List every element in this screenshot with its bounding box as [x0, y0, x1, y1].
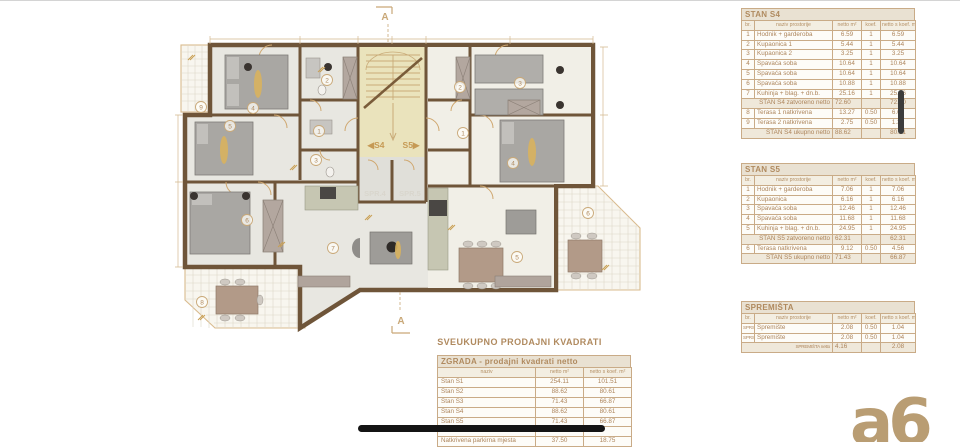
table-cell: STAN S4 zatvoreno netto	[742, 99, 833, 109]
table-cell: Stan S3	[438, 397, 536, 407]
table-cell: Terasa 1 natkrivena	[755, 109, 833, 119]
table-cell: 9	[742, 118, 755, 128]
table-row: STAN S4 zatvoreno netto72.6072.60	[742, 99, 916, 109]
table-cell: 1	[862, 89, 881, 99]
table-cell: 4	[742, 60, 755, 70]
stan-s4-table: STAN S4 br. naziv prostorije netto m² ko…	[741, 8, 915, 139]
table-cell: Kuhinja + blag. + dn.b.	[755, 89, 833, 99]
page: { "colors": { "accent_tan": "#c9a878", "…	[0, 0, 960, 442]
table-cell: 24.95	[833, 224, 862, 234]
table-row: 1Hodnik + garderoba7.0617.06	[742, 185, 916, 195]
table-cell: 4.16	[833, 343, 862, 353]
spremista-title: SPREMIŠTA	[741, 301, 915, 313]
col-header: netto s koef. m²	[881, 21, 916, 31]
table-cell: 72.60	[833, 99, 862, 109]
table-cell: Kupaonica	[755, 195, 833, 205]
room-number: 2	[325, 78, 329, 85]
table-cell: 6.59	[833, 30, 862, 40]
table-cell: 11.68	[881, 215, 916, 225]
table-cell: 101.51	[584, 377, 632, 387]
table-cell: Terasa 2 natkrivena	[755, 118, 833, 128]
table-cell: Hodnik + garderoba	[755, 185, 833, 195]
table-cell: 5	[742, 224, 755, 234]
col-header: koef.	[862, 314, 881, 324]
section-marker-top: A	[376, 7, 392, 44]
table-cell: 88.62	[536, 407, 584, 417]
table-cell: 2.08	[833, 333, 862, 343]
table-cell: 80.61	[584, 407, 632, 417]
section-label-top: A	[381, 12, 388, 23]
storage-label-spr5: SPR.5	[399, 189, 421, 198]
table-cell: 10.64	[881, 69, 916, 79]
table-cell: 1	[862, 40, 881, 50]
room-number: 8	[200, 300, 204, 307]
table-cell: 3	[742, 50, 755, 60]
table-cell: 0.50	[862, 109, 881, 119]
table-cell: 6	[742, 79, 755, 89]
marker-horizontal-line	[358, 425, 605, 432]
table-cell: Spavaća soba	[755, 60, 833, 70]
table-cell: 1	[862, 30, 881, 40]
table-cell: Stan S1	[438, 377, 536, 387]
table-row: SPRS4Spremište2.080.501.04	[742, 323, 916, 333]
room-number: 9	[199, 105, 203, 112]
table-cell: Kupaonica 2	[755, 50, 833, 60]
table-row: STAN S4 ukupno netto88.6280.61	[742, 128, 916, 138]
col-header: netto m²	[833, 21, 862, 31]
col-header: netto s koef. m²	[881, 176, 916, 186]
table-cell: Kupaonica 1	[755, 40, 833, 50]
table-cell: STAN S5 zatvoreno netto	[742, 234, 833, 244]
table-cell: 4.56	[881, 244, 916, 254]
stan-s5-title: STAN S5	[741, 163, 915, 175]
table-cell: Terasa natkrivena	[755, 244, 833, 254]
table-cell: 7.06	[881, 185, 916, 195]
table-cell: 1	[742, 30, 755, 40]
room-number: 7	[331, 246, 335, 253]
table-cell: 2	[742, 195, 755, 205]
table-cell: 5	[742, 69, 755, 79]
table-cell: 2.75	[833, 118, 862, 128]
table-row: 2Kupaonica 15.4415.44	[742, 40, 916, 50]
section-label-bottom: A	[397, 316, 404, 327]
spremista-table: SPREMIŠTA br. naziv prostorije netto m² …	[741, 301, 915, 353]
table-cell: 1	[862, 205, 881, 215]
table-cell: 5.44	[881, 40, 916, 50]
table-cell: 1	[862, 60, 881, 70]
table-cell: SPREMIŠTA netto	[742, 343, 833, 353]
section-marker-bottom: A	[392, 292, 410, 333]
table-cell: 3.25	[881, 50, 916, 60]
table-cell: Hodnik + garderoba	[755, 30, 833, 40]
col-header: koef.	[862, 176, 881, 186]
table-row: 1Hodnik + garderoba6.5916.59	[742, 30, 916, 40]
room-number: 5	[515, 255, 519, 262]
table-cell: 1	[862, 69, 881, 79]
table-cell: 10.64	[833, 60, 862, 70]
table-cell: 7	[742, 89, 755, 99]
table-cell: 1	[862, 195, 881, 205]
table-cell: Spavaća soba	[755, 69, 833, 79]
table-cell: 11.68	[833, 215, 862, 225]
table-cell: 1	[742, 185, 755, 195]
room-number: 4	[251, 106, 255, 113]
table-row: 3Spavaća soba12.46112.46	[742, 205, 916, 215]
table-cell	[862, 128, 881, 138]
table-row: 7Kuhinja + blag. + dn.b.25.16125.16	[742, 89, 916, 99]
table-row: 5Spavaća soba10.64110.64	[742, 69, 916, 79]
table-cell: Spavaća soba	[755, 79, 833, 89]
table-cell	[862, 343, 881, 353]
stair-label-s4: ◀S4	[367, 140, 385, 150]
table-cell: 0.50	[862, 323, 881, 333]
table-row: STAN S5 ukupno netto71.4366.87	[742, 254, 916, 264]
table-row: SPRS5Spremište2.080.501.04	[742, 333, 916, 343]
table-cell: 10.64	[833, 69, 862, 79]
table-cell: 1	[862, 79, 881, 89]
room-number: 3	[518, 81, 522, 88]
table-cell: 62.31	[881, 234, 916, 244]
summary-title: SVEUKUPNO PRODAJNI KVADRATI	[402, 337, 637, 347]
table-row: 9Terasa 2 natkrivena2.750.501.38	[742, 118, 916, 128]
table-cell: 12.46	[881, 205, 916, 215]
table-cell: 2.08	[881, 343, 916, 353]
table-cell: 0.50	[862, 244, 881, 254]
room-number: 6	[586, 211, 590, 218]
room-number: 4	[511, 161, 515, 168]
table-cell: 6	[742, 244, 755, 254]
col-header: br.	[742, 314, 755, 324]
table-row: 5Kuhinja + blag. + dn.b.24.95124.95	[742, 224, 916, 234]
table-cell: STAN S4 ukupno netto	[742, 128, 833, 138]
storage-label-spr4: SPR.4	[364, 189, 387, 198]
room-number: 2	[458, 85, 462, 92]
table-cell: Stan S4	[438, 407, 536, 417]
room-number: 1	[317, 129, 321, 136]
table-cell: SPRS5	[742, 333, 755, 343]
table-cell: 1	[862, 185, 881, 195]
table-row: Stan S488.6280.61	[438, 407, 632, 417]
table-row: 2Kupaonica6.1616.16	[742, 195, 916, 205]
marker-vertical-bar	[898, 90, 904, 134]
col-header: naziv prostorije	[755, 21, 833, 31]
table-cell: 3.25	[833, 50, 862, 60]
table-cell: 7.06	[833, 185, 862, 195]
table-cell: 254.11	[536, 377, 584, 387]
room-number: 1	[461, 131, 465, 138]
table-cell: Kuhinja + blag. + dn.b.	[755, 224, 833, 234]
table-row: 8Terasa 1 natkrivena13.270.506.64	[742, 109, 916, 119]
table-cell: 6.16	[881, 195, 916, 205]
table-cell: 0.50	[862, 333, 881, 343]
table-row: Stan S1254.11101.51	[438, 377, 632, 387]
col-header: netto m²	[833, 176, 862, 186]
col-header: naziv prostorije	[755, 314, 833, 324]
table-cell: 3	[742, 205, 755, 215]
col-header: netto s koef. m²	[881, 314, 916, 324]
zgrada-table: ZGRADA - prodajni kvadrati netto naziv n…	[437, 355, 631, 447]
table-cell: 2	[742, 40, 755, 50]
table-cell: 5.44	[833, 40, 862, 50]
table-cell: 62.31	[833, 234, 862, 244]
table-cell: 10.88	[833, 79, 862, 89]
table-cell: 0.50	[862, 118, 881, 128]
table-row: 3Kupaonica 23.2513.25	[742, 50, 916, 60]
col-header: koef.	[862, 21, 881, 31]
table-cell: 6.59	[881, 30, 916, 40]
stan-s4-title: STAN S4	[741, 8, 915, 20]
table-cell: 88.62	[833, 128, 862, 138]
stan-s5-table: STAN S5 br. naziv prostorije netto m² ko…	[741, 163, 915, 264]
table-cell: Stan S2	[438, 387, 536, 397]
table-cell: 66.87	[881, 254, 916, 264]
table-cell: Spavaća soba	[755, 205, 833, 215]
col-header: br.	[742, 176, 755, 186]
table-cell: 88.62	[536, 387, 584, 397]
table-cell: Spremište	[755, 323, 833, 333]
zgrada-title: ZGRADA - prodajni kvadrati netto	[437, 355, 631, 367]
table-cell: 1.04	[881, 333, 916, 343]
table-cell: 1.04	[881, 323, 916, 333]
table-row: SPREMIŠTA netto4.162.08	[742, 343, 916, 353]
table-cell: 66.87	[584, 397, 632, 407]
room-number: 5	[228, 124, 232, 131]
table-cell: SPRS4	[742, 323, 755, 333]
col-header: netto m²	[536, 368, 584, 378]
room-number: 3	[314, 158, 318, 165]
table-cell: 80.61	[584, 387, 632, 397]
table-cell: 12.46	[833, 205, 862, 215]
table-cell	[862, 254, 881, 264]
table-cell: Spavaća soba	[755, 215, 833, 225]
col-header: naziv	[438, 368, 536, 378]
table-cell: 71.43	[536, 397, 584, 407]
table-row: 6Terasa natkrivena9.120.504.56	[742, 244, 916, 254]
col-header: netto m²	[833, 314, 862, 324]
table-cell: 9.12	[833, 244, 862, 254]
table-cell: 1	[862, 224, 881, 234]
table-cell: 10.64	[881, 60, 916, 70]
room-number: 6	[245, 218, 249, 225]
table-row: STAN S5 zatvoreno netto62.3162.31	[742, 234, 916, 244]
table-cell	[862, 234, 881, 244]
table-cell: 71.43	[833, 254, 862, 264]
table-cell: 8	[742, 109, 755, 119]
table-cell: STAN S5 ukupno netto	[742, 254, 833, 264]
table-cell: 10.88	[881, 79, 916, 89]
col-header: naziv prostorije	[755, 176, 833, 186]
stair-label-s5: S5▶	[403, 140, 421, 150]
logo: a6	[850, 391, 955, 442]
table-row: 4Spavaća soba10.64110.64	[742, 60, 916, 70]
table-row: 6Spavaća soba10.88110.88	[742, 79, 916, 89]
col-header: netto s koef. m²	[584, 368, 632, 378]
table-row: 4Spavaća soba11.68111.68	[742, 215, 916, 225]
floor-plan: A A ◀S4 S5▶ SPR.4 SPR.5 1 2 3 4 5 6 7 8	[170, 0, 650, 345]
table-cell: 2.08	[833, 323, 862, 333]
table-cell: Spremište	[755, 333, 833, 343]
table-row: Stan S288.6280.61	[438, 387, 632, 397]
table-cell: 13.27	[833, 109, 862, 119]
table-cell: 1	[862, 215, 881, 225]
table-cell	[862, 99, 881, 109]
table-cell: 25.16	[833, 89, 862, 99]
table-cell: 6.16	[833, 195, 862, 205]
table-cell: 24.95	[881, 224, 916, 234]
col-header: br.	[742, 21, 755, 31]
table-row: Stan S371.4366.87	[438, 397, 632, 407]
table-cell: 1	[862, 50, 881, 60]
table-cell: 4	[742, 215, 755, 225]
